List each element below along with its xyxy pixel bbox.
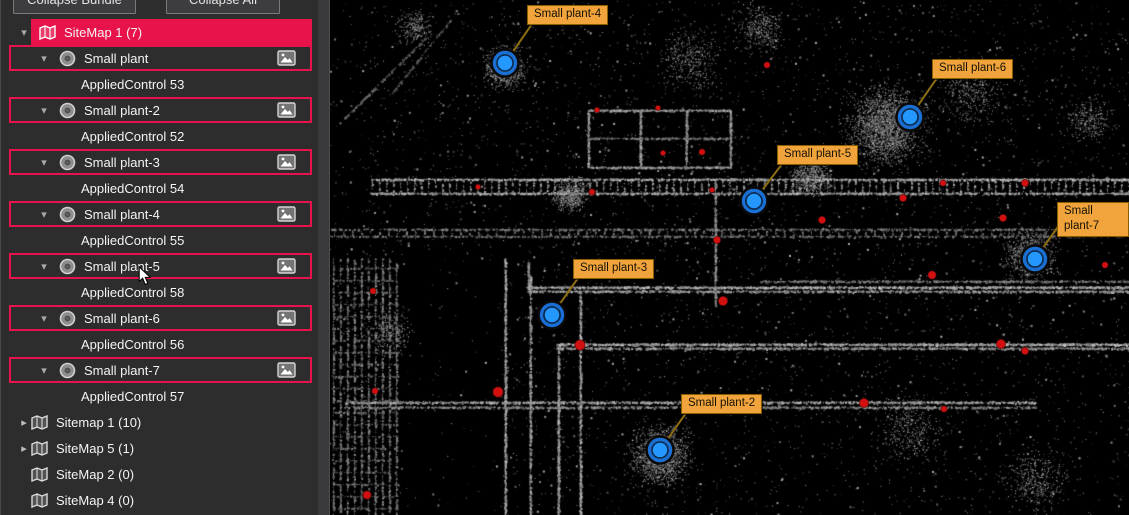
applied-control-label: AppliedControl 57	[81, 389, 184, 404]
tree-item-group[interactable]: SiteMap 4 (0)	[31, 493, 134, 508]
tree-item-applied-control[interactable]: AppliedControl 57	[1, 383, 318, 409]
map-icon	[31, 441, 48, 456]
scan-target-dot	[928, 271, 936, 279]
scan-icon	[59, 50, 76, 67]
chevron-down-icon[interactable]: ▾	[17, 26, 31, 39]
marker-center[interactable]	[746, 193, 762, 209]
scan-target-dot	[1022, 348, 1029, 355]
scan-target-dot	[710, 188, 715, 193]
tree-item-label: Small plant-3	[84, 155, 160, 170]
scan-target-dot	[900, 195, 907, 202]
tree-item-label: Small plant-4	[84, 207, 160, 222]
scan-icon	[59, 102, 76, 119]
scan-target-dot	[370, 288, 376, 294]
marker-center[interactable]	[497, 55, 513, 71]
image-icon[interactable]	[277, 362, 296, 378]
tree-row-scan[interactable]: ▾ Small plant-3	[1, 149, 318, 175]
scan-target-dot	[363, 491, 371, 499]
scan-icon	[59, 258, 76, 275]
tree-item-group[interactable]: SiteMap 2 (0)	[31, 467, 134, 482]
tree-item-label: Sitemap 1 (10)	[56, 415, 141, 430]
tree-item-label: Small plant-6	[84, 311, 160, 326]
marker-label[interactable]: Small plant-6	[932, 59, 1013, 79]
chevron-down-icon[interactable]: ▾	[37, 364, 51, 377]
tree-item-applied-control[interactable]: AppliedControl 56	[1, 331, 318, 357]
scan-target-dot	[714, 237, 721, 244]
tree-item-applied-control[interactable]: AppliedControl 52	[1, 123, 318, 149]
scan-target-dot	[997, 340, 1006, 349]
tree-row-scan[interactable]: ▾ Small plant	[1, 45, 318, 71]
scan-target-dot	[493, 387, 503, 397]
structure-panel: Collapse Bundle Collapse All ▾ SiteMap 1…	[0, 0, 318, 515]
scan-target-dot	[1022, 180, 1029, 187]
marker-center[interactable]	[652, 442, 668, 458]
scan-icon	[59, 206, 76, 223]
chevron-down-icon[interactable]: ▾	[37, 260, 51, 273]
tree-item-selected[interactable]: SiteMap 1 (7)	[31, 19, 312, 45]
scan-target-dot	[656, 106, 661, 111]
tree-row-sitemap[interactable]: SiteMap 2 (0)	[1, 461, 318, 487]
scan-target-dot	[1102, 262, 1108, 268]
scan-target-dot	[476, 185, 481, 190]
tree-item-applied-control[interactable]: AppliedControl 53	[1, 71, 318, 97]
tree-item-group[interactable]: Sitemap 1 (10)	[31, 415, 141, 430]
pointcloud-viewer[interactable]: Small plant-4Small plant-6Small plant-5S…	[330, 0, 1129, 515]
scan-target-dot	[372, 388, 378, 394]
scan-target-dot	[1000, 215, 1007, 222]
project-tree: ▾ SiteMap 1 (7) ▾ Small plant AppliedCon…	[1, 19, 318, 513]
scan-icon	[59, 310, 76, 327]
marker-center[interactable]	[902, 109, 918, 125]
map-icon	[31, 415, 48, 430]
map-icon	[39, 25, 56, 40]
scan-target-dot	[819, 217, 826, 224]
tree-item-label: SiteMap 2 (0)	[56, 467, 134, 482]
tree-item-group[interactable]: SiteMap 5 (1)	[31, 441, 134, 456]
chevron-down-icon[interactable]: ▾	[37, 104, 51, 117]
image-icon[interactable]	[277, 258, 296, 274]
applied-control-label: AppliedControl 52	[81, 129, 184, 144]
scan-icon	[59, 362, 76, 379]
chevron-down-icon[interactable]: ▾	[37, 52, 51, 65]
tree-row-sitemap[interactable]: SiteMap 4 (0)	[1, 487, 318, 513]
scan-target-dot	[860, 399, 869, 408]
scan-target-dot	[940, 180, 946, 186]
applied-control-label: AppliedControl 53	[81, 77, 184, 92]
toolbar: Collapse Bundle Collapse All	[1, 0, 318, 16]
tree-item-label: Small plant-7	[84, 363, 160, 378]
tree-row-scan[interactable]: ▾ Small plant-4	[1, 201, 318, 227]
tree-row-scan[interactable]: ▾ Small plant-5	[1, 253, 318, 279]
tree-item-label: SiteMap 5 (1)	[56, 441, 134, 456]
marker-label[interactable]: Small plant-5	[777, 145, 858, 165]
tree-row-sitemap[interactable]: ▸ Sitemap 1 (10)	[1, 409, 318, 435]
image-icon[interactable]	[277, 206, 296, 222]
scan-target-dot	[575, 340, 585, 350]
tree-item-label: Small plant-2	[84, 103, 160, 118]
tree-row-sitemap[interactable]: ▸ SiteMap 5 (1)	[1, 435, 318, 461]
applied-control-label: AppliedControl 54	[81, 181, 184, 196]
chevron-right-icon[interactable]: ▸	[17, 416, 31, 429]
tree-item-label: SiteMap 1 (7)	[64, 25, 142, 40]
chevron-down-icon[interactable]: ▾	[37, 208, 51, 221]
tree-row-scan[interactable]: ▾ Small plant-7	[1, 357, 318, 383]
scan-target-dot	[941, 406, 947, 412]
tree-item-label: Small plant	[84, 51, 148, 66]
applied-control-label: AppliedControl 55	[81, 233, 184, 248]
tree-item-scan[interactable]: ▾ Small plant-7	[9, 357, 312, 383]
panel-divider[interactable]	[318, 0, 330, 515]
chevron-down-icon[interactable]: ▾	[37, 312, 51, 325]
tree-item-sitemap-1[interactable]: ▾ SiteMap 1 (7)	[1, 19, 318, 45]
marker-label[interactable]: Small plant-2	[681, 394, 762, 414]
app-window: Collapse Bundle Collapse All ▾ SiteMap 1…	[0, 0, 1129, 515]
tree-item-scan[interactable]: ▾ Small plant	[9, 45, 312, 71]
map-icon	[31, 493, 48, 508]
marker-label[interactable]: Small plant-4	[527, 5, 608, 25]
image-icon[interactable]	[277, 50, 296, 66]
tree-item-applied-control[interactable]: AppliedControl 55	[1, 227, 318, 253]
scan-target-dot	[764, 62, 770, 68]
scan-target-dot	[589, 189, 595, 195]
scan-target-dot	[661, 151, 666, 156]
image-icon[interactable]	[277, 310, 296, 326]
scan-target-dot	[595, 108, 600, 113]
tree-item-scan[interactable]: ▾ Small plant-6	[9, 305, 312, 331]
scan-target-dot	[699, 149, 705, 155]
tree-item-scan[interactable]: ▾ Small plant-4	[9, 201, 312, 227]
marker-label[interactable]: Small plant-7	[1057, 202, 1129, 237]
image-icon[interactable]	[277, 154, 296, 170]
collapse-bundle-button[interactable]: Collapse Bundle	[13, 0, 136, 14]
collapse-all-button[interactable]: Collapse All	[166, 0, 280, 14]
image-icon[interactable]	[277, 102, 296, 118]
marker-label[interactable]: Small plant-3	[573, 259, 654, 279]
tree-item-scan[interactable]: ▾ Small plant-2	[9, 97, 312, 123]
applied-control-label: AppliedControl 56	[81, 337, 184, 352]
tree-item-applied-control[interactable]: AppliedControl 58	[1, 279, 318, 305]
chevron-right-icon[interactable]: ▸	[17, 442, 31, 455]
tree-item-applied-control[interactable]: AppliedControl 54	[1, 175, 318, 201]
tree-item-scan[interactable]: ▾ Small plant-5	[9, 253, 312, 279]
tree-row-scan[interactable]: ▾ Small plant-6	[1, 305, 318, 331]
scan-target-dot	[719, 297, 728, 306]
chevron-down-icon[interactable]: ▾	[37, 156, 51, 169]
map-icon	[31, 467, 48, 482]
mouse-cursor	[138, 266, 152, 286]
tree-item-label: SiteMap 4 (0)	[56, 493, 134, 508]
applied-control-label: AppliedControl 58	[81, 285, 184, 300]
tree-row-scan[interactable]: ▾ Small plant-2	[1, 97, 318, 123]
scan-icon	[59, 154, 76, 171]
marker-center[interactable]	[544, 307, 560, 323]
marker-center[interactable]	[1027, 251, 1043, 267]
tree-item-scan[interactable]: ▾ Small plant-3	[9, 149, 312, 175]
